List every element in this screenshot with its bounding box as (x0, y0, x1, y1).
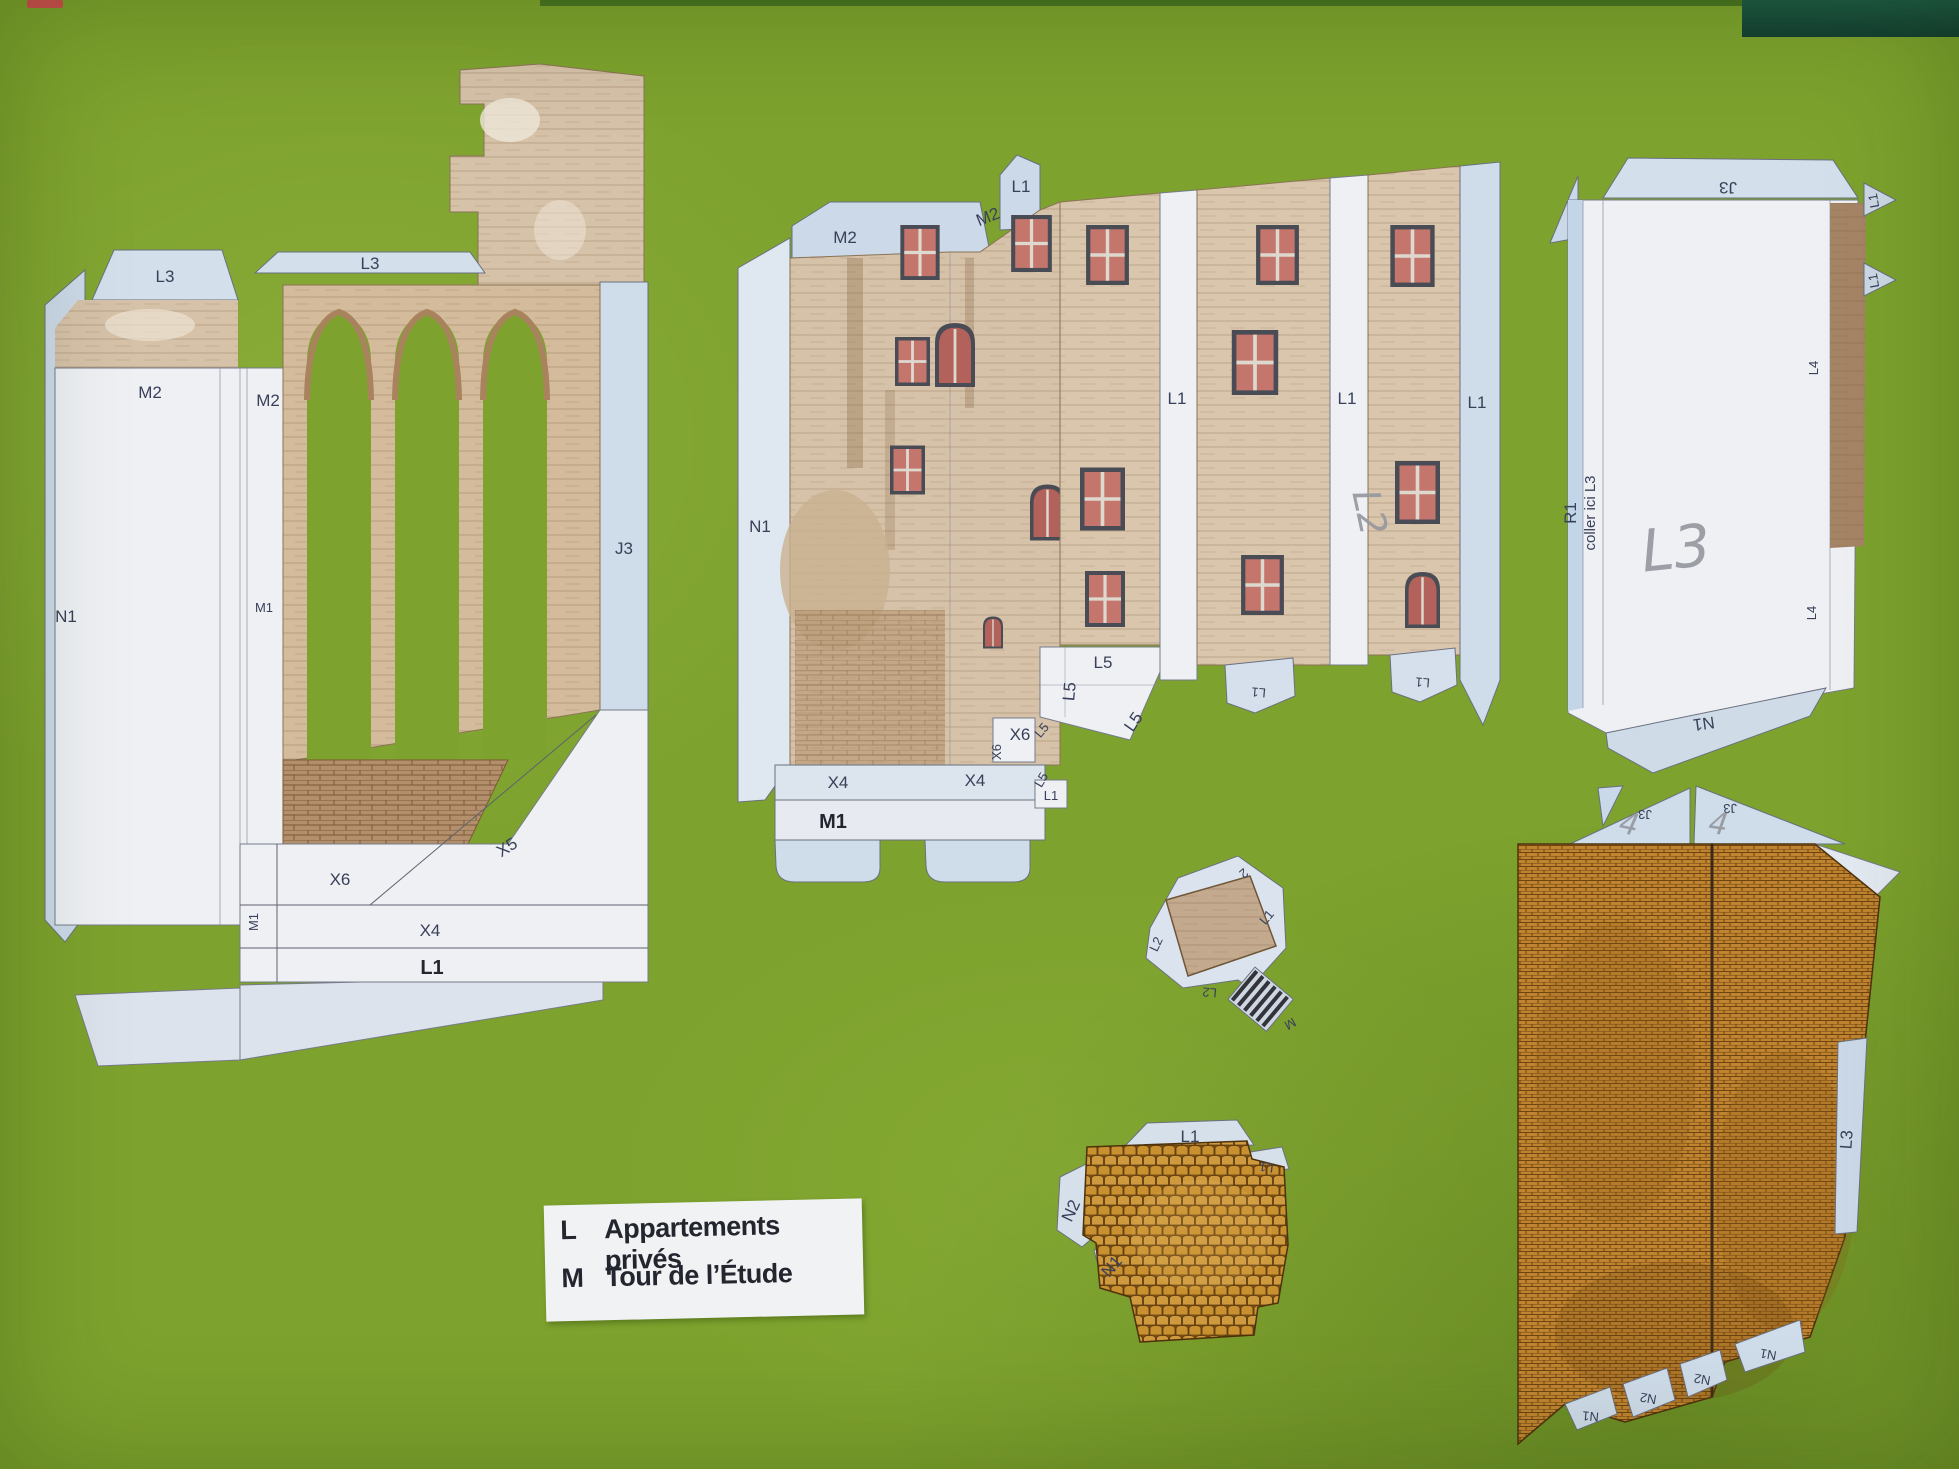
label-l3: L3 (361, 254, 380, 273)
label-l1: L1 (1181, 1127, 1200, 1146)
stone-patch (795, 610, 945, 765)
aqueduct-shapes (45, 64, 648, 1066)
stain (847, 258, 863, 468)
highlight (1132, 1180, 1272, 1290)
label-l5: L5 (1059, 681, 1080, 702)
paint-blotch (534, 200, 586, 260)
label-l3: L3 (156, 267, 175, 286)
mat-dark-corner (1742, 0, 1959, 37)
aqueduct-piece: L3 L3 M2 M2 N1 M1 J3 X6 X5 X4 M1 L1 (40, 60, 660, 1070)
glue-tab (775, 840, 880, 882)
label-l1: L1 (1012, 177, 1031, 196)
label-m2: M2 (833, 228, 857, 247)
window (895, 337, 930, 386)
pencil-mark: L3 (1638, 511, 1714, 586)
label-n1: N1 (1582, 1408, 1600, 1424)
label-l4: L4 (1806, 361, 1821, 375)
label-n2: N2 (1639, 1390, 1658, 1408)
roof-piece: L1 N2 N1 L1 (1052, 1115, 1312, 1360)
arched-niche (935, 323, 975, 387)
side-panel-piece: J3 L1 L1 R1 coller ici L3 L3 L4 L4 N1 (1548, 148, 1918, 838)
legend-strip: L Appartements privés M Tour de l’Étude (544, 1198, 865, 1321)
label-l1: L1 (1415, 674, 1431, 690)
window (1232, 330, 1278, 395)
label-m1: M1 (255, 600, 273, 615)
glue-tab (792, 202, 990, 258)
label-x6: X6 (989, 744, 1004, 760)
separator-strip (1160, 190, 1197, 680)
facade-piece: M2 M2 L1 N1 L1 L1 L1 L2 L5 L5 L5 L5 L5 X… (735, 140, 1505, 890)
pencil-mark: L2 (1343, 486, 1395, 540)
arch-opening (483, 312, 547, 760)
panel (55, 368, 283, 925)
label-n1: N1 (749, 517, 771, 536)
separator-strip (1330, 175, 1368, 665)
label-l1: L1 (1168, 389, 1187, 408)
shading (1535, 922, 1695, 1222)
label-m1-edge: M1 (246, 913, 261, 931)
label-x6: X6 (330, 870, 351, 889)
edge-strip (1460, 162, 1500, 725)
glue-tab (1390, 648, 1457, 702)
label-m: M (1282, 1015, 1299, 1033)
label-l1: L1 (1865, 192, 1882, 209)
mat-edge-line (540, 0, 1755, 6)
shading (1555, 1262, 1795, 1402)
roof-shapes (1057, 1120, 1289, 1342)
label-x4: X4 (965, 771, 986, 790)
label-l4: L4 (1804, 606, 1819, 620)
label-l2: L2 (1202, 984, 1218, 1000)
label-l1: L1 (1258, 1159, 1274, 1176)
label-m1-bold: M1 (819, 811, 847, 833)
label-l1: L1 (1251, 684, 1267, 700)
window (890, 446, 925, 495)
legend-key: L (560, 1215, 591, 1247)
glue-tab (925, 840, 1030, 882)
panel (1568, 200, 1858, 733)
bottom-band (775, 765, 1045, 800)
label-l1: L1 (1338, 389, 1357, 408)
label-l1: L1 (1468, 393, 1487, 412)
window (1395, 461, 1440, 524)
label-coller-ici: coller ici L3 (1582, 475, 1599, 550)
paint-blotch (480, 98, 540, 142)
label-x6: X6 (1010, 725, 1031, 744)
label-j3: J3 (615, 539, 633, 558)
window (1086, 225, 1129, 285)
label-r1: R1 (1561, 502, 1580, 524)
label-l1: L1 (1044, 788, 1058, 803)
window-box-shapes (1146, 856, 1293, 1031)
label-l5: L5 (1094, 653, 1113, 672)
label-m2: M2 (138, 383, 162, 402)
window (1256, 225, 1299, 285)
label-l3: L3 (1836, 1130, 1856, 1150)
label-j3: J3 (1719, 178, 1737, 197)
arch-opening (307, 312, 371, 760)
label-n2: N2 (1693, 1371, 1712, 1389)
window (1241, 555, 1284, 615)
stone-base (283, 760, 508, 844)
legend-label: Tour de l’Étude (605, 1258, 793, 1293)
glue-tab (240, 976, 603, 1060)
label-m2: M2 (256, 391, 280, 410)
label-x4: X4 (828, 773, 849, 792)
label-n1: N1 (1759, 1346, 1778, 1364)
label-l1-bold: L1 (420, 957, 443, 979)
bottom-band (775, 800, 1045, 840)
brick-wall-shapes (1518, 786, 1900, 1444)
legend-key: M (561, 1263, 592, 1295)
legend-row: L Appartements privés (560, 1208, 863, 1263)
window (1011, 215, 1052, 272)
label-n1: N1 (1692, 713, 1716, 735)
label-x4: X4 (420, 921, 441, 940)
arched-window (983, 617, 1003, 649)
window (1080, 468, 1125, 531)
red-mark (27, 0, 63, 8)
brick-wall-piece: J3 J3 4 4 L3 N1 N2 N2 N1 (1505, 772, 1920, 1472)
window (1390, 225, 1434, 287)
arch-opening (395, 312, 459, 760)
side-panel-shapes (1550, 158, 1896, 826)
paint-blotch (105, 309, 195, 341)
window (1405, 572, 1440, 628)
label-l1: L1 (1865, 272, 1882, 289)
window-box-piece: L2 L1 L2 2 M (1138, 848, 1318, 1038)
window (900, 225, 939, 280)
brown-strip-texture (1830, 203, 1866, 548)
edge-strip (1568, 200, 1583, 711)
label-n1: N1 (55, 607, 77, 626)
window (1085, 571, 1125, 627)
glue-tab (75, 988, 240, 1066)
